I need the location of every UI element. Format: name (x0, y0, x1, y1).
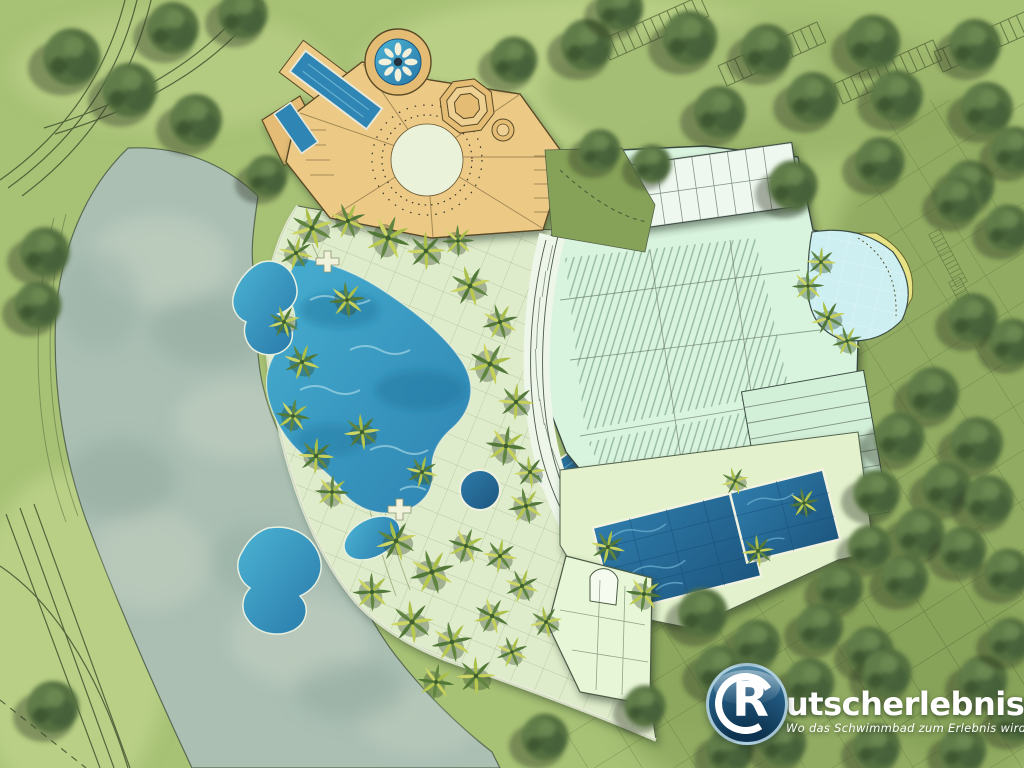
watermark-logo: R utscherlebnis.de Wo das Schwimmbad zum… (706, 663, 1024, 745)
site-plan-image: R utscherlebnis.de Wo das Schwimmbad zum… (0, 0, 1024, 768)
logo-tagline: Wo das Schwimmbad zum Erlebnis wird.. (786, 721, 1024, 735)
sun-pool (365, 29, 431, 95)
logo-text: utscherlebnis.de Wo das Schwimmbad zum E… (786, 688, 1024, 735)
logo-letter: R (732, 671, 769, 729)
round-pool (460, 470, 500, 510)
logo-wordmark: utscherlebnis (786, 685, 1024, 723)
site-plan-canvas (0, 0, 1024, 768)
logo-mark-icon: R (706, 663, 788, 745)
